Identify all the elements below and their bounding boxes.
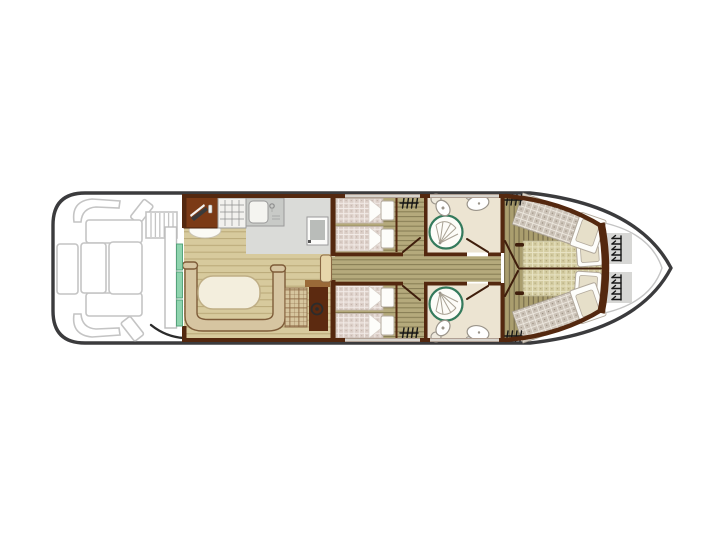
- corridor-floor: [331, 256, 501, 281]
- corridor-wall: [424, 282, 467, 286]
- window-band: [345, 338, 420, 341]
- saloon-cabin-wall: [331, 194, 336, 256]
- saloon: [183, 197, 332, 341]
- window-band: [345, 194, 420, 197]
- corridor-wall: [424, 253, 467, 257]
- bench-armrest: [183, 262, 198, 269]
- cabin-bath-wall: [424, 283, 428, 340]
- step-locker: [606, 233, 632, 264]
- step-locker: [606, 272, 632, 303]
- headboard: [396, 198, 398, 252]
- bench-armrest: [271, 265, 286, 272]
- saloon-front-wall: [182, 326, 187, 342]
- stove-icon: [218, 198, 246, 228]
- sink-icon: [246, 198, 284, 226]
- window-band: [430, 338, 499, 341]
- boat-floorplan: [0, 0, 720, 540]
- floorplan-canvas: [0, 0, 720, 540]
- green-door-panel: [177, 272, 183, 298]
- cabin-bath-wall: [424, 196, 428, 253]
- corridor-wall: [488, 282, 501, 286]
- saloon-cabin-wall: [331, 280, 336, 340]
- entry-door: [165, 227, 177, 328]
- pillow: [381, 316, 394, 335]
- deck-table: [109, 242, 142, 294]
- deck-bench-port: [86, 220, 142, 243]
- shower: [430, 216, 463, 249]
- pillow: [381, 229, 394, 248]
- corridor-wall: [488, 253, 501, 257]
- saloon-front-wall: [182, 194, 187, 228]
- helm-seat: [285, 288, 307, 327]
- side-bench: [57, 244, 78, 294]
- green-door-panel: [177, 244, 183, 270]
- corridor-wall: [335, 282, 403, 286]
- pillow: [381, 201, 394, 220]
- bath-bow-wall: [501, 283, 505, 340]
- bath-bow-wall: [501, 196, 505, 253]
- window-band: [430, 194, 499, 197]
- headboard: [396, 285, 398, 339]
- deck-table-small: [81, 243, 106, 293]
- pillow: [381, 288, 394, 307]
- shower: [430, 288, 463, 321]
- fridge: [307, 217, 328, 245]
- deck-bench-starboard: [86, 293, 142, 316]
- corridor-wall: [335, 253, 403, 257]
- green-door-panel: [177, 300, 183, 326]
- dinette-table: [198, 276, 260, 309]
- sliding-door: [321, 255, 332, 282]
